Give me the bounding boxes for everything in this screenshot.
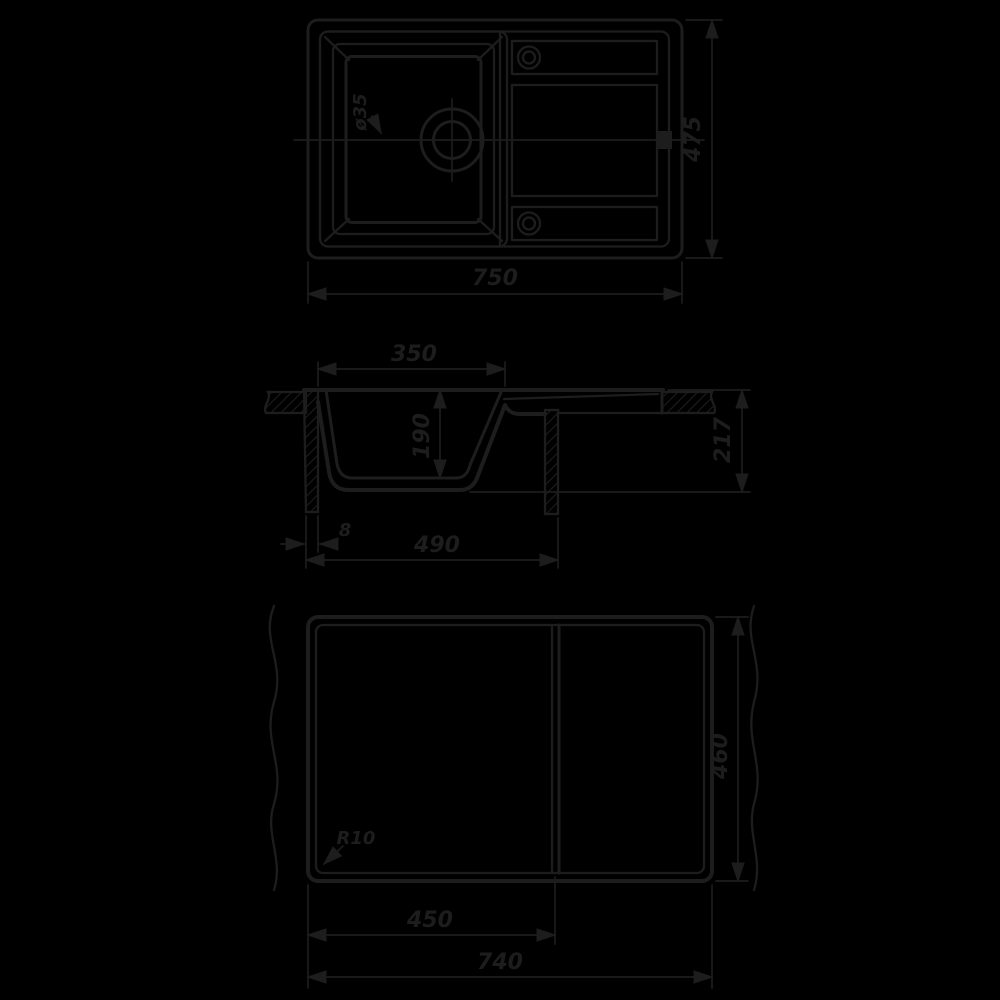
dim-label-base-width: 740 — [477, 950, 523, 975]
dim-corner-radius: R10 — [324, 828, 375, 864]
countertop-left — [265, 392, 306, 413]
bowl-plan — [320, 32, 507, 247]
countertop-right — [662, 392, 715, 413]
right-wall-cut — [545, 410, 558, 514]
dim-base-width: 740 — [308, 885, 712, 988]
dim-label-overall-depth: 475 — [681, 116, 706, 163]
dim-label-corner-radius: R10 — [337, 828, 376, 849]
dim-label-bowl-depth: 190 — [410, 413, 435, 459]
bowl-outer-edge — [320, 32, 507, 247]
bowl-corner-tl — [325, 37, 349, 60]
tap-hole-bottom-outer — [518, 213, 540, 235]
dim-label-drain: ø35 — [350, 93, 371, 131]
dim-drain-diameter: ø35 — [350, 93, 381, 133]
dim-label-edge-offset: 8 — [339, 520, 352, 541]
rim-notch — [656, 131, 672, 149]
dim-label-base-depth: 460 — [708, 733, 733, 780]
section-view: 350 190 217 490 8 — [265, 342, 750, 568]
tap-hole-bottom-inner — [523, 218, 535, 230]
drain-leader-arrow — [372, 116, 381, 133]
top-view: 750 475 ø35 — [294, 20, 722, 303]
dim-label-bottom-width: 490 — [413, 533, 460, 558]
countertop-break-left — [270, 606, 278, 890]
tap-hole-top-outer — [518, 47, 540, 69]
dim-top-width: 750 — [308, 262, 682, 303]
countertop-break-right — [751, 606, 758, 890]
countertop-cut-left — [265, 392, 306, 413]
dim-label-opening-width: 350 — [391, 342, 437, 367]
bowl-corner-tr — [478, 37, 502, 60]
dim-label-bowl-section-width: 450 — [406, 908, 453, 933]
drainboard-underside-line — [504, 394, 658, 399]
bowl-corner-bl — [325, 219, 349, 241]
bottom-view: R10 460 450 740 — [270, 606, 758, 988]
dim-bowl-depth: 190 — [410, 390, 440, 478]
drainboard-top-strip — [512, 41, 657, 74]
dim-label-overall-width: 750 — [472, 266, 518, 291]
dim-top-depth: 475 — [681, 20, 722, 258]
dim-label-overall-height: 217 — [711, 416, 736, 463]
dim-edge-offset: 8 — [281, 516, 351, 552]
bowl-corner-br — [478, 219, 502, 241]
dim-bowl-opening: 350 — [318, 342, 505, 386]
tap-hole-top-inner — [523, 52, 535, 64]
sink-technical-drawing: 750 475 ø35 — [0, 0, 1000, 1000]
countertop-cut-right — [662, 392, 715, 413]
left-wall-cut — [304, 390, 318, 512]
drawing-canvas: 750 475 ø35 — [0, 0, 1000, 1000]
drainboard-bottom-strip — [512, 207, 657, 240]
